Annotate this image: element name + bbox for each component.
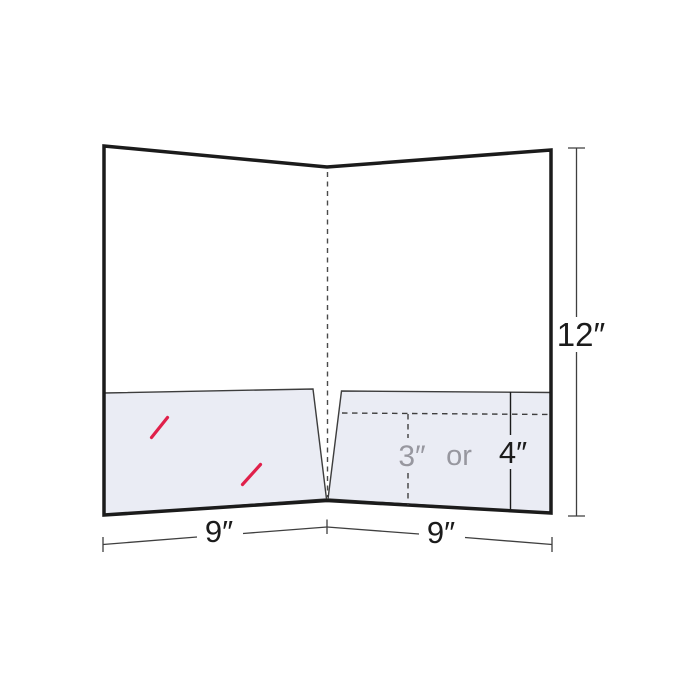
pocket-4in-label: 4″ (499, 435, 527, 470)
right-width-dimension-line-a (327, 527, 419, 534)
right-width-dimension-label: 9″ (427, 515, 455, 550)
left-width-dimension-label: 9″ (205, 514, 233, 549)
left-width-dimension-line-a (103, 537, 197, 545)
height-dimension-label: 12″ (557, 316, 606, 353)
folder-dimensions-diagram: 12″ 9″ 9″ 3″ or 4″ (0, 0, 700, 700)
left-width-dimension-line-b (243, 527, 327, 534)
diagram-svg: 12″ 9″ 9″ 3″ or 4″ (0, 0, 700, 700)
right-width-dimension-line-b (465, 538, 552, 545)
left-pocket (104, 389, 327, 515)
pocket-or-label: or (446, 440, 472, 472)
pocket-3in-label: 3″ (398, 440, 426, 473)
